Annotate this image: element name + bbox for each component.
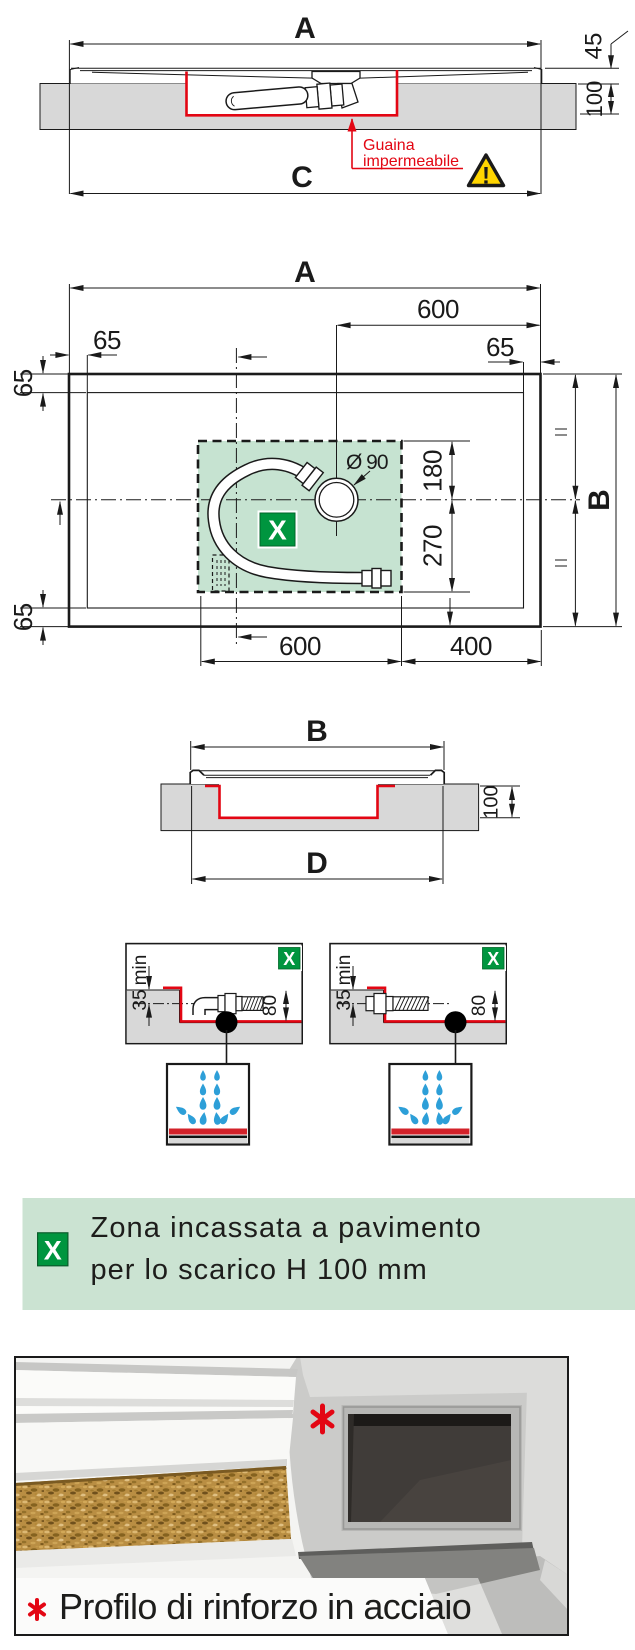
svg-text:X: X xyxy=(268,515,287,546)
svg-text:180: 180 xyxy=(417,450,447,492)
svg-text:X: X xyxy=(283,949,295,969)
svg-text:35: 35 xyxy=(130,989,151,1010)
svg-text:65: 65 xyxy=(486,332,514,362)
svg-text:A: A xyxy=(294,12,316,45)
svg-text:80: 80 xyxy=(260,995,281,1016)
svg-text:Guaina: Guaina xyxy=(363,137,415,154)
svg-text:per lo scarico H 100 mm: per lo scarico H 100 mm xyxy=(91,1254,428,1286)
svg-text:X: X xyxy=(487,949,499,969)
svg-text:X: X xyxy=(44,1236,62,1266)
svg-text:!: ! xyxy=(482,163,490,190)
svg-text:impermeabile: impermeabile xyxy=(363,153,459,170)
svg-text:C: C xyxy=(291,161,313,194)
svg-text:A: A xyxy=(294,256,316,289)
svg-text:270: 270 xyxy=(417,525,447,567)
svg-text:65: 65 xyxy=(93,325,121,355)
svg-text:65: 65 xyxy=(8,603,38,631)
svg-text:80: 80 xyxy=(469,995,490,1016)
svg-text:400: 400 xyxy=(450,631,492,661)
svg-text:Ø 90: Ø 90 xyxy=(346,451,388,474)
svg-text:35: 35 xyxy=(334,989,355,1010)
svg-text:Profilo di rinforzo in acciaio: Profilo di rinforzo in acciaio xyxy=(59,1586,471,1627)
svg-text:D: D xyxy=(306,847,328,880)
svg-text:600: 600 xyxy=(417,294,459,324)
svg-text:100: 100 xyxy=(480,785,502,818)
svg-text:min: min xyxy=(334,955,355,986)
svg-text:min: min xyxy=(130,955,151,986)
svg-text:100: 100 xyxy=(582,81,607,118)
svg-text:Zona incassata a pavimento: Zona incassata a pavimento xyxy=(91,1212,482,1244)
svg-text:B: B xyxy=(583,489,616,511)
svg-text:45: 45 xyxy=(580,33,607,60)
svg-text:600: 600 xyxy=(279,631,321,661)
svg-text:B: B xyxy=(306,715,328,748)
svg-text:65: 65 xyxy=(8,369,38,397)
